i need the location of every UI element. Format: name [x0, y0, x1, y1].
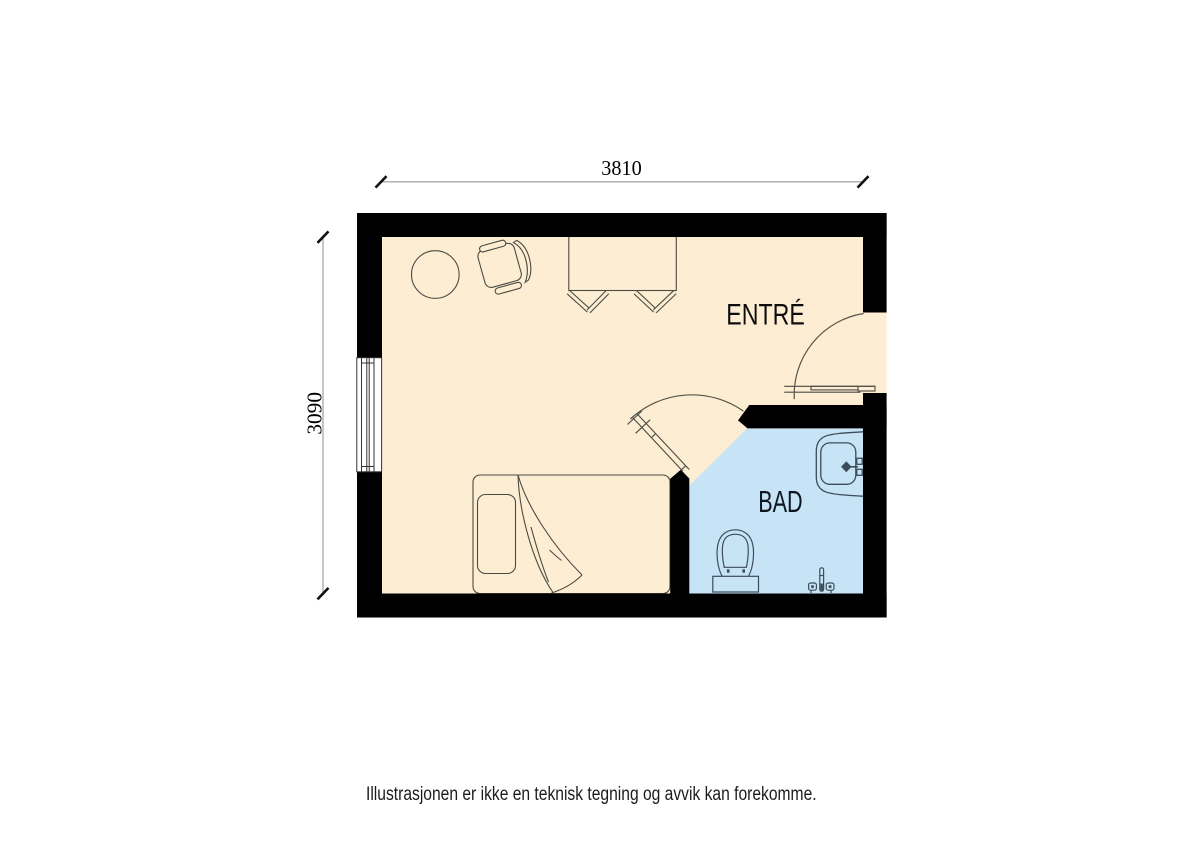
- svg-text:3090: 3090: [302, 392, 326, 435]
- svg-text:ENTRÉ: ENTRÉ: [726, 299, 805, 332]
- svg-text:Illustrasjonen er ikke en tekn: Illustrasjonen er ikke en teknisk tegnin…: [366, 784, 817, 805]
- svg-text:BAD: BAD: [758, 484, 802, 519]
- svg-text:3810: 3810: [601, 156, 642, 180]
